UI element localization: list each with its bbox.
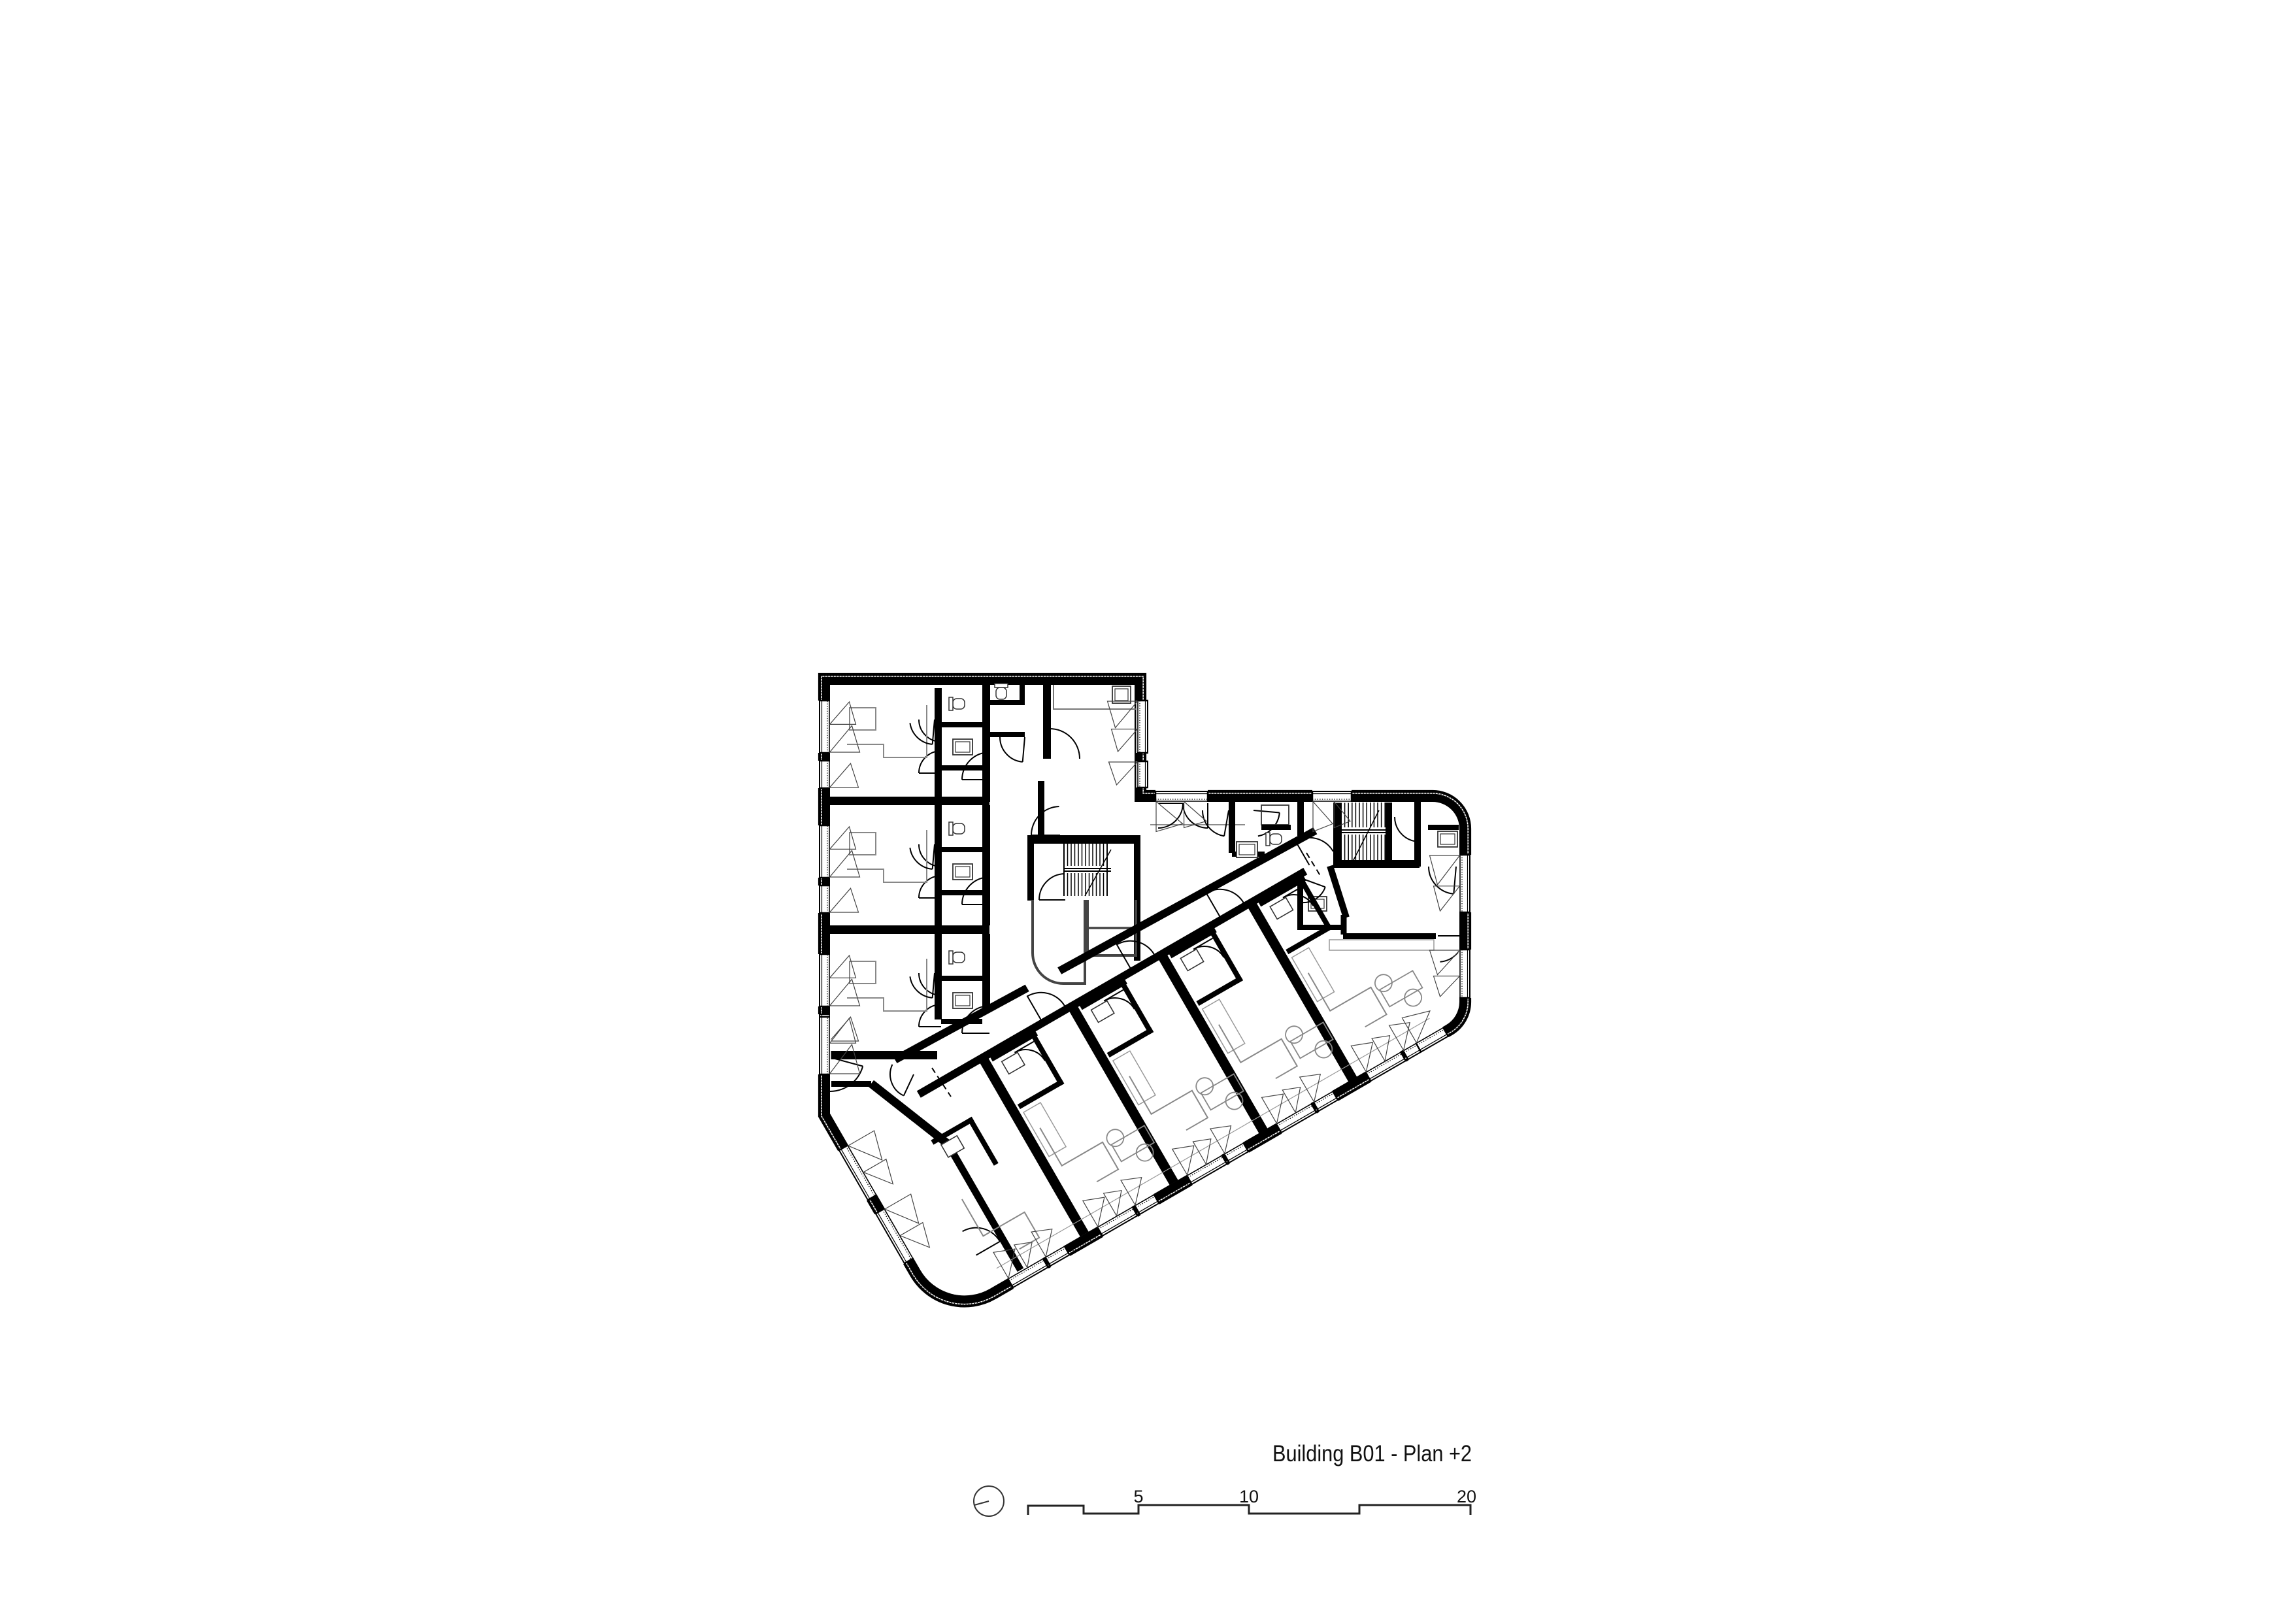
svg-text:20: 20 xyxy=(1457,1487,1476,1506)
svg-text:5: 5 xyxy=(1133,1487,1143,1506)
svg-text:10: 10 xyxy=(1239,1487,1259,1506)
svg-text:Building B01 - Plan +2: Building B01 - Plan +2 xyxy=(1272,1440,1472,1467)
